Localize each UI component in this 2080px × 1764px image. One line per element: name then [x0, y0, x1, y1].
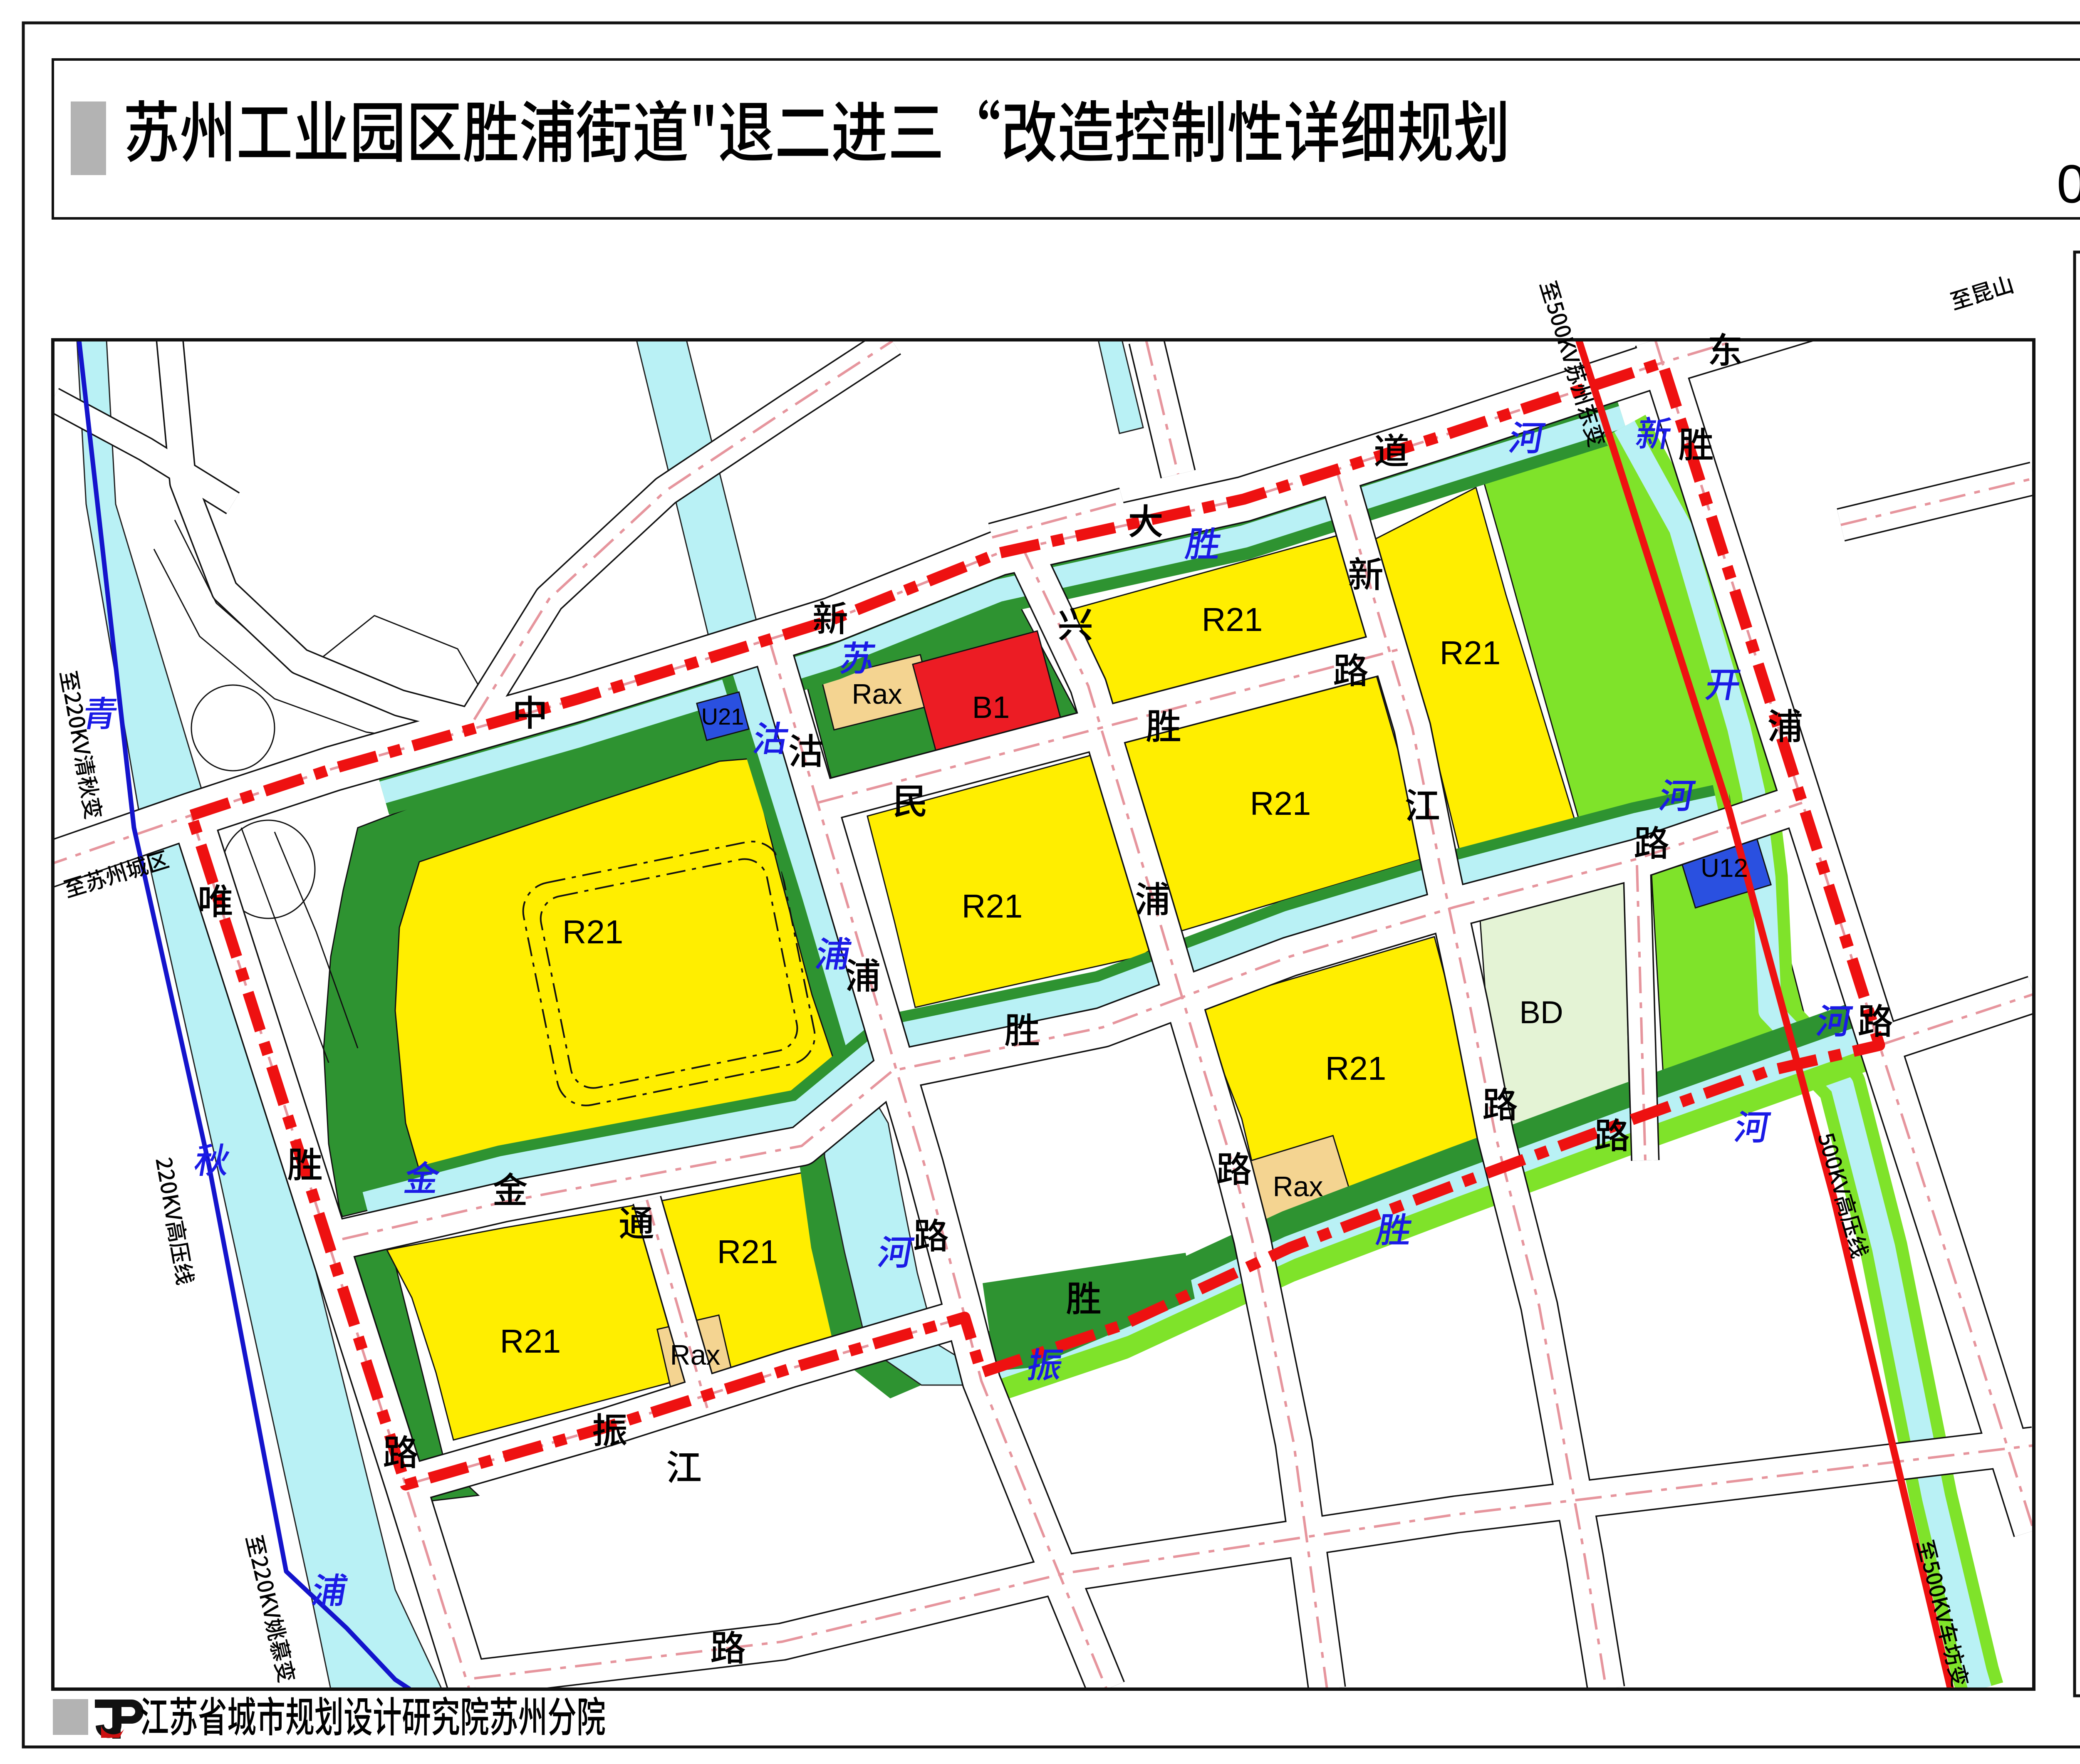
- svg-text:R21: R21: [500, 1323, 561, 1360]
- svg-text:R21: R21: [962, 888, 1023, 925]
- svg-text:R21: R21: [1440, 634, 1501, 671]
- svg-text:05: 05: [2057, 153, 2080, 214]
- svg-text:R21: R21: [1250, 785, 1311, 822]
- svg-text:R21: R21: [717, 1233, 778, 1270]
- svg-text:Rax: Rax: [852, 678, 902, 710]
- svg-text:R21: R21: [562, 913, 624, 950]
- svg-text:B1: B1: [972, 690, 1010, 725]
- svg-text:U12: U12: [1701, 854, 1748, 883]
- svg-text:U21: U21: [701, 703, 744, 730]
- svg-text:R21: R21: [1202, 601, 1263, 638]
- svg-text:BD: BD: [1519, 995, 1563, 1030]
- svg-text:Rax: Rax: [1273, 1171, 1323, 1202]
- svg-text:Rax: Rax: [670, 1339, 721, 1371]
- svg-text:R21: R21: [1325, 1050, 1387, 1087]
